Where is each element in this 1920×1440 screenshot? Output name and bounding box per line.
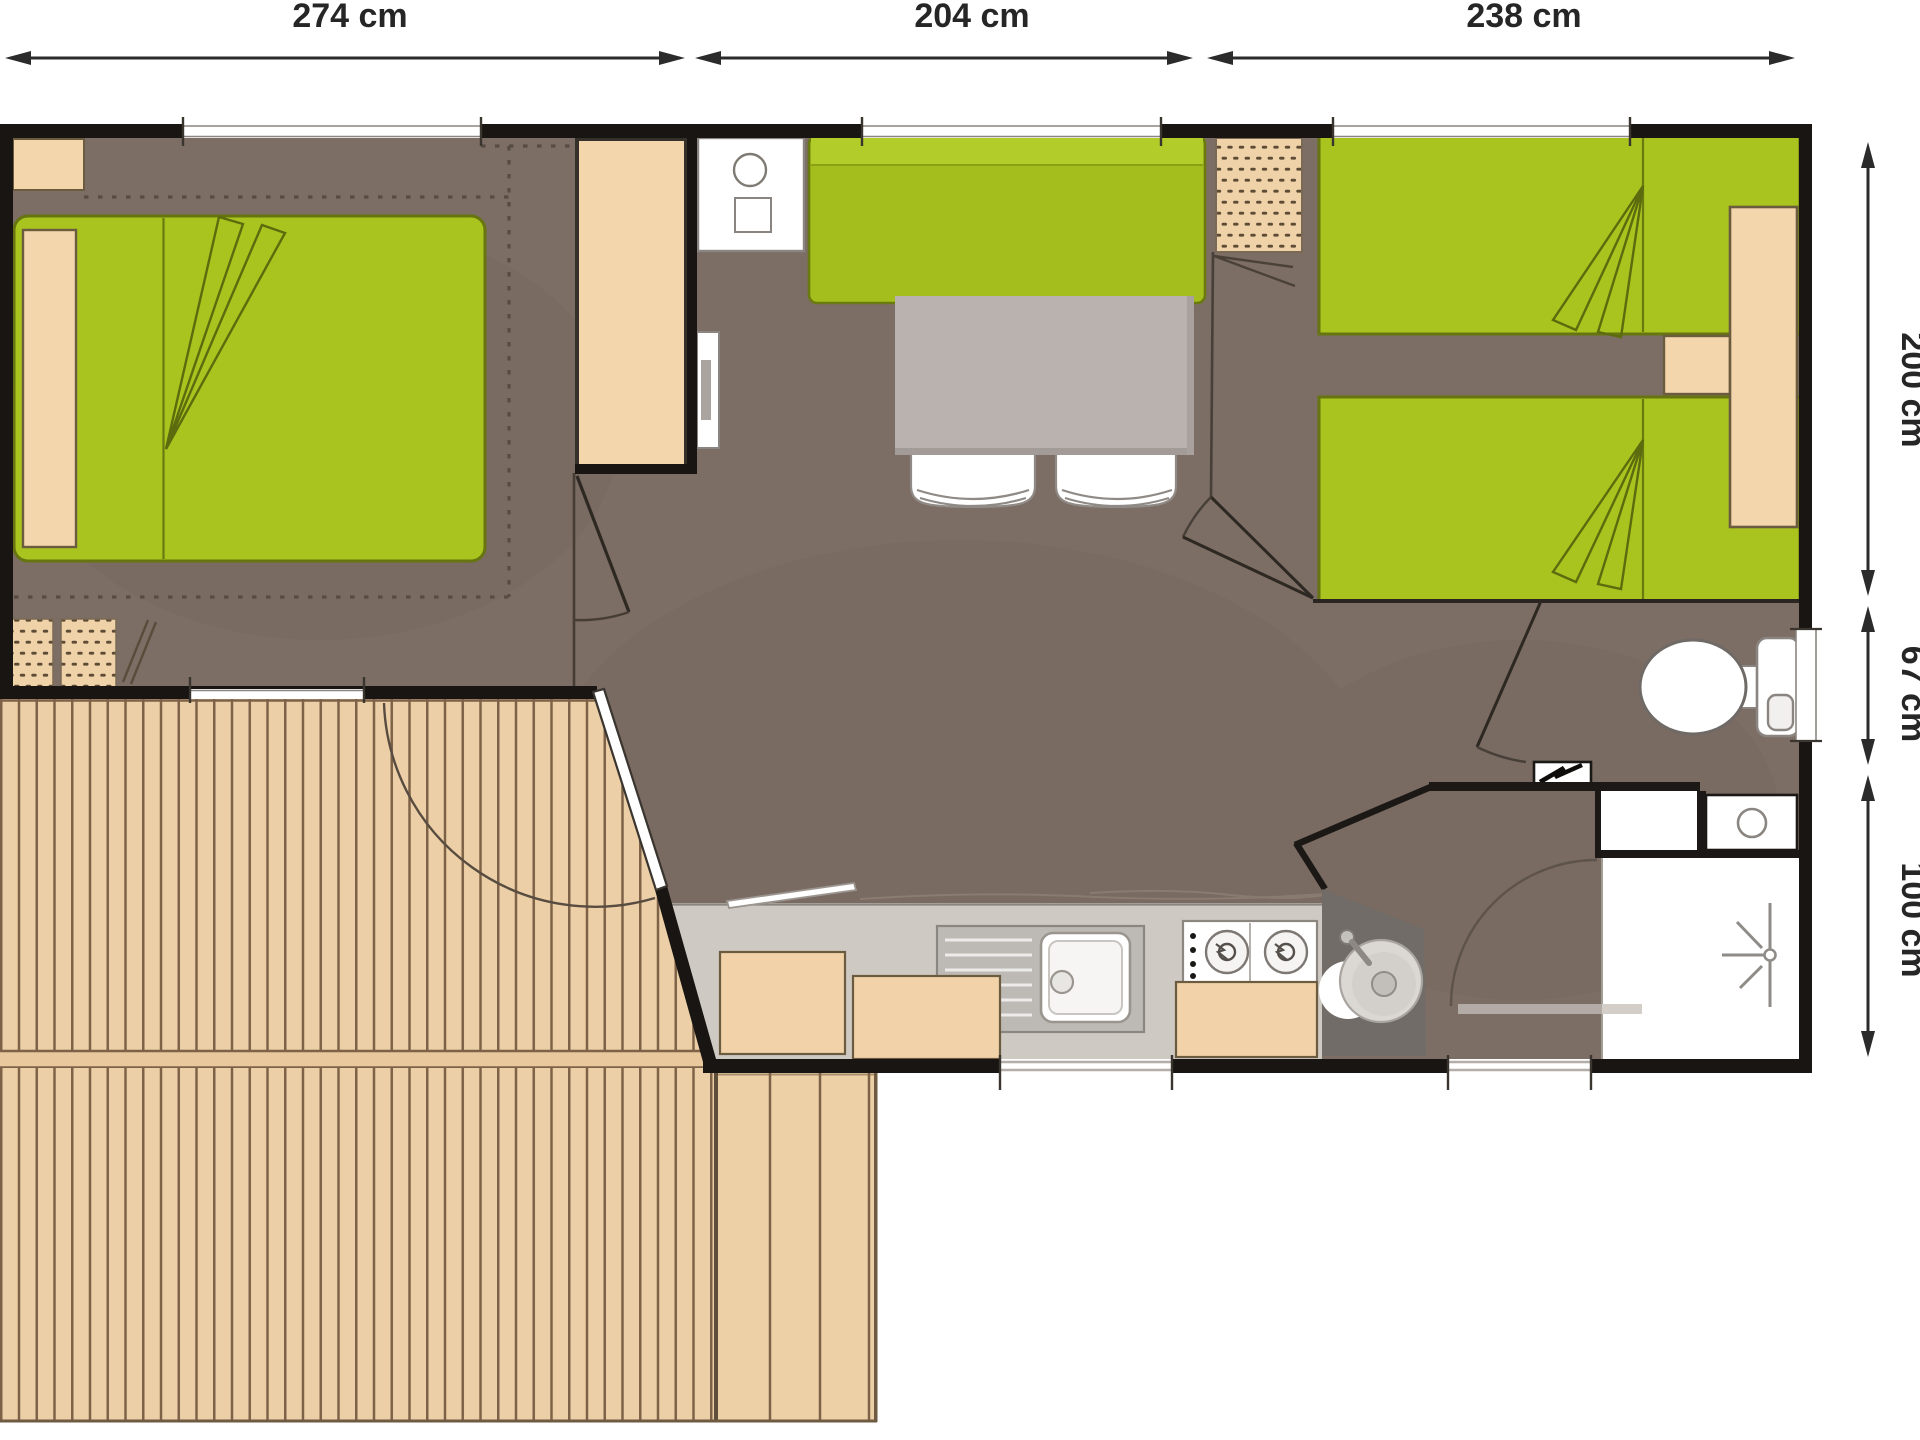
- svg-text:274 cm: 274 cm: [292, 0, 407, 35]
- svg-text:238 cm: 238 cm: [1466, 0, 1581, 35]
- svg-text:204 cm: 204 cm: [914, 0, 1029, 35]
- svg-text:67 cm: 67 cm: [1894, 646, 1920, 742]
- svg-text:100 cm: 100 cm: [1894, 862, 1920, 977]
- svg-text:200 cm: 200 cm: [1894, 332, 1920, 447]
